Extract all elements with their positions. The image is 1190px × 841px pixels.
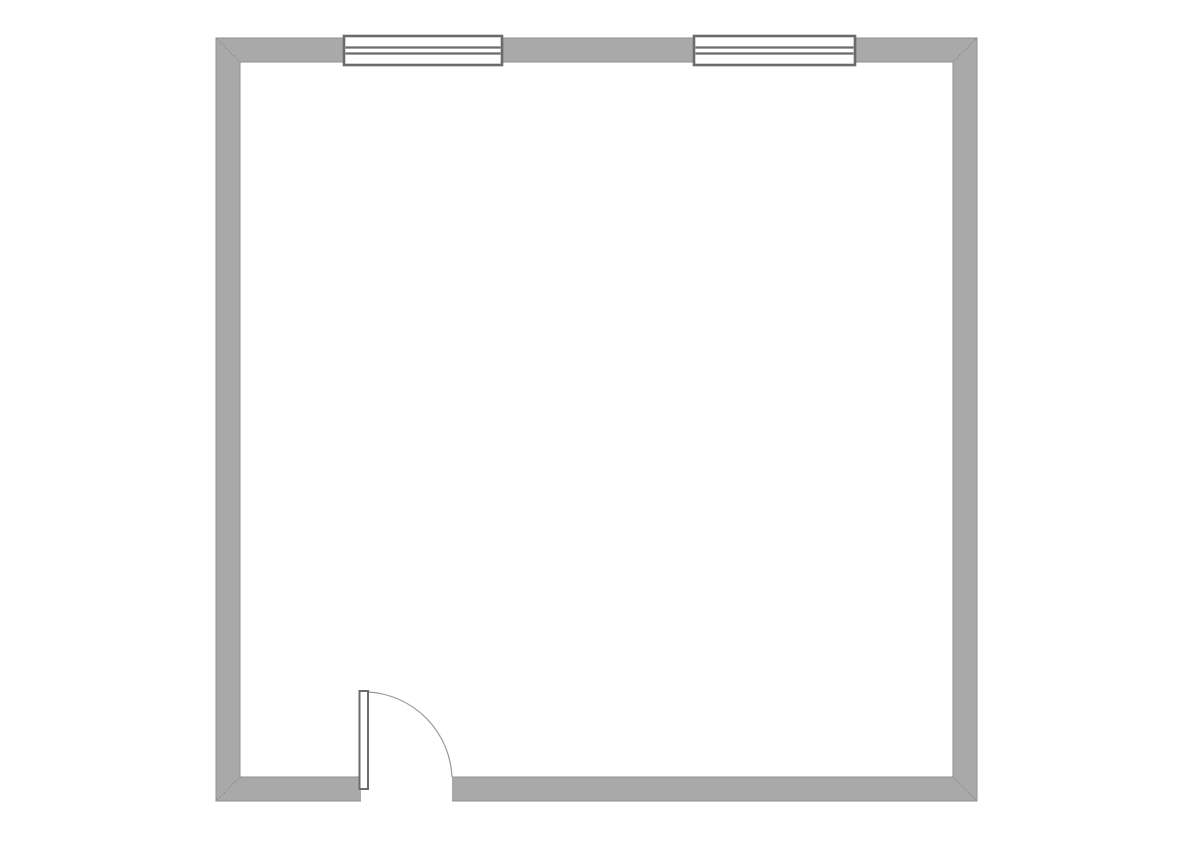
- door-opening: [361, 776, 452, 804]
- floor-plan-page: [0, 0, 1190, 841]
- window-2-frame: [694, 36, 855, 65]
- window-1-frame: [344, 36, 502, 65]
- door-leaf: [360, 691, 369, 789]
- wall-ring: [216, 38, 977, 801]
- floor-plan-drawing: [0, 0, 1190, 841]
- door-swing-arc: [368, 692, 452, 777]
